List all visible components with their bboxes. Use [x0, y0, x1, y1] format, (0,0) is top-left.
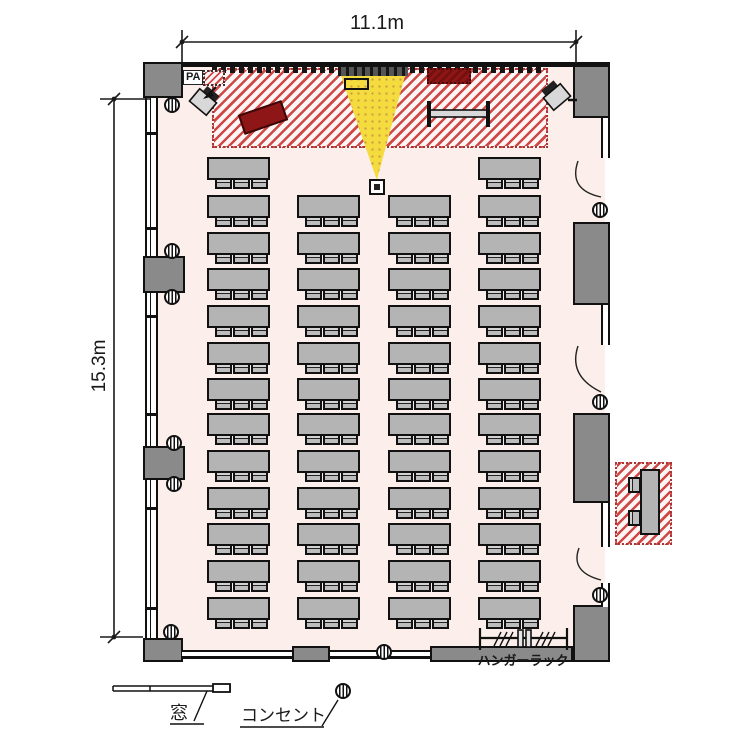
- hanger-rack-icon: [480, 628, 567, 650]
- dimension-lines: [100, 30, 582, 643]
- speakers: [189, 78, 577, 115]
- linework-overlay: [0, 0, 750, 750]
- outlet-legend-label: コンセント: [241, 701, 326, 726]
- speaker-right-icon: [539, 78, 571, 110]
- window-legend-icon: [113, 684, 230, 692]
- door-arc-1: [576, 161, 601, 197]
- height-dimension-label: 15.3m: [89, 321, 111, 411]
- door-arc-2: [576, 346, 601, 392]
- speaker-left-icon: [189, 83, 221, 115]
- door-arc-3: [577, 548, 601, 580]
- dimension-dots: [112, 40, 579, 640]
- whiteboard: [427, 101, 490, 127]
- pa-label: PA: [183, 70, 203, 85]
- floor-plan: 11.1m 15.3m PA ハンガーラック 窓 コンセント: [0, 0, 750, 750]
- door-arcs: [576, 161, 601, 580]
- width-dimension-label: 11.1m: [322, 12, 432, 35]
- window-leader-line: [194, 691, 207, 721]
- width-extension-lines: [182, 30, 576, 64]
- hanger-rack-label: ハンガーラック: [468, 650, 578, 669]
- window-legend-label: 窓: [170, 699, 188, 725]
